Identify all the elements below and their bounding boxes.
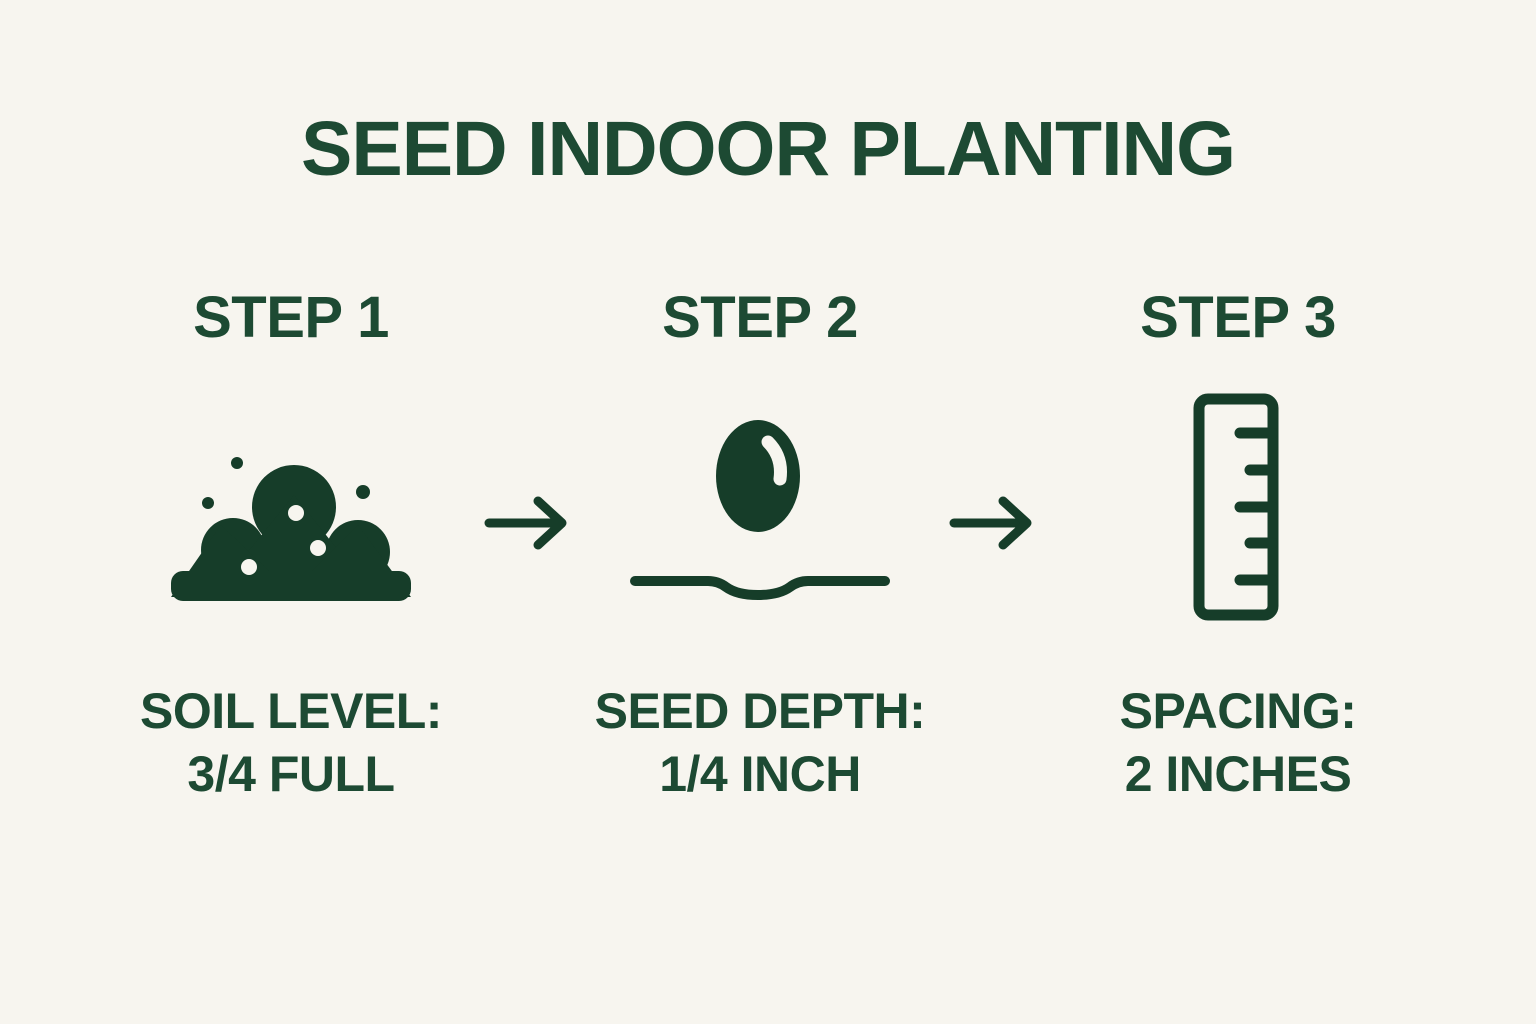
step-2-caption-line2: 1/4 INCH [550, 743, 970, 806]
step-2-caption: SEED DEPTH: 1/4 INCH [550, 680, 970, 806]
step-1-caption-line2: 3/4 FULL [81, 743, 501, 806]
seed-in-furrow-icon [630, 415, 890, 605]
step-2-heading: STEP 2 [560, 289, 960, 347]
step-3-caption-line2: 2 INCHES [1028, 743, 1448, 806]
step-3-heading: STEP 3 [1038, 289, 1438, 347]
step-3-caption-line1: SPACING: [1028, 680, 1448, 743]
infographic-canvas: SEED INDOOR PLANTING STEP 1 STEP 2 STEP … [0, 0, 1536, 1024]
soil-pile-icon [161, 455, 421, 605]
right-arrow-icon [483, 492, 573, 554]
page-title: SEED INDOOR PLANTING [0, 111, 1536, 188]
step-1-heading: STEP 1 [91, 289, 491, 347]
step-2-caption-line1: SEED DEPTH: [550, 680, 970, 743]
step-3-caption: SPACING: 2 INCHES [1028, 680, 1448, 806]
ruler-icon [1188, 390, 1288, 630]
step-1-caption-line1: SOIL LEVEL: [81, 680, 501, 743]
step-1-caption: SOIL LEVEL: 3/4 FULL [81, 680, 501, 806]
right-arrow-icon [948, 492, 1038, 554]
